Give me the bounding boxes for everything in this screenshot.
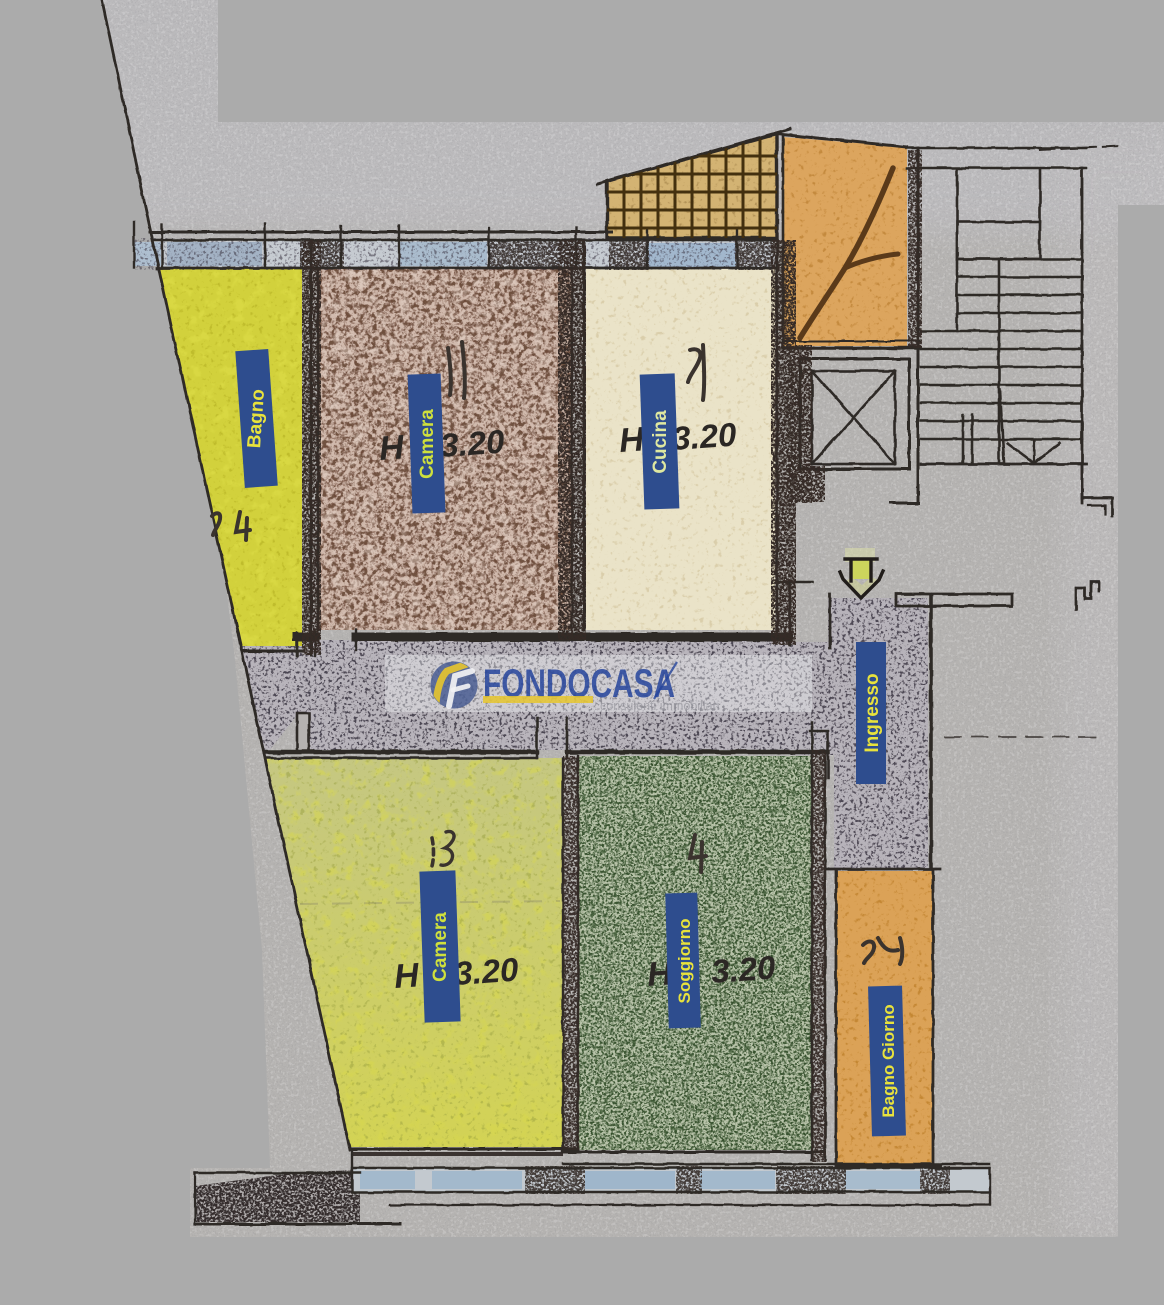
svg-text:Bagno: Bagno (244, 388, 269, 448)
svg-text:Bagno Giorno: Bagno Giorno (879, 1004, 898, 1117)
svg-text:H: H (393, 956, 422, 996)
svg-text:3.20: 3.20 (453, 951, 520, 992)
svg-text:consulenti immobiliari: consulenti immobiliari (600, 699, 720, 713)
svg-text:Camera: Camera (417, 409, 438, 479)
svg-text:Ingresso: Ingresso (862, 673, 883, 752)
svg-text:Camera: Camera (430, 912, 451, 982)
svg-text:Soggiorno: Soggiorno (675, 919, 694, 1004)
svg-text:3.20: 3.20 (710, 949, 777, 990)
svg-text:3.20: 3.20 (671, 416, 738, 457)
svg-text:H: H (378, 428, 407, 468)
svg-text:3.20: 3.20 (439, 423, 506, 464)
svg-text:Cucina: Cucina (650, 410, 671, 474)
